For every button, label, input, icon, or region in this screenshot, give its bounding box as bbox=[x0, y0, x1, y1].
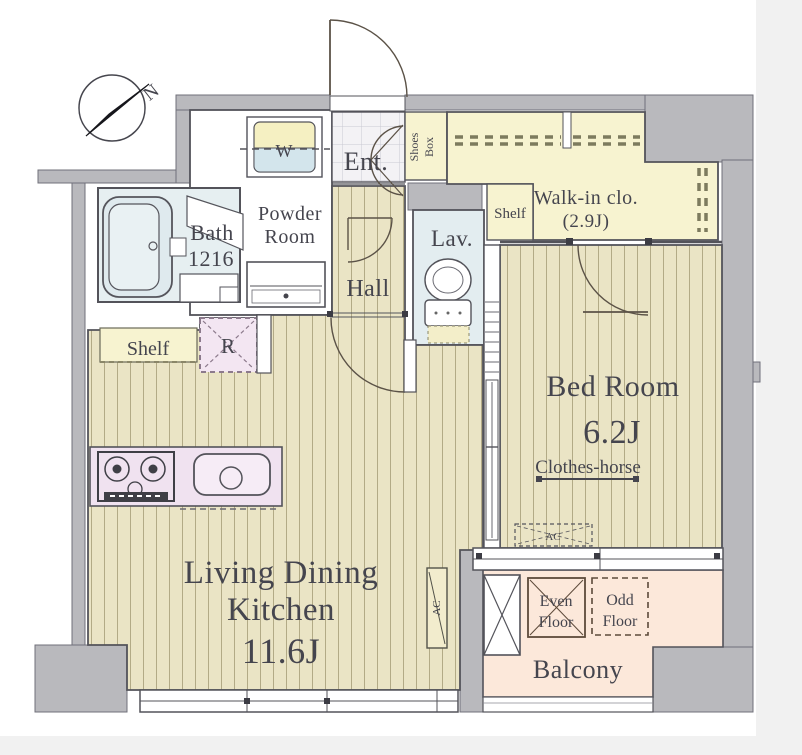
powder-room-label-2: Room bbox=[265, 226, 316, 248]
wall bbox=[72, 183, 85, 645]
wall bbox=[722, 160, 753, 647]
wall bbox=[645, 95, 753, 162]
ldk-ac-label: AC bbox=[431, 600, 443, 615]
lavatory-counter bbox=[408, 183, 482, 210]
ldk-size: 11.6J bbox=[242, 631, 320, 671]
powder-room-label-1: Powder bbox=[258, 203, 322, 225]
closet-shelf-label: Shelf bbox=[494, 206, 526, 222]
washbasin-cabinet bbox=[247, 262, 325, 307]
bath-drain bbox=[220, 287, 238, 302]
balcony-label: Balcony bbox=[533, 655, 623, 684]
wall bbox=[753, 362, 760, 382]
bedroom-label: Bed Room bbox=[546, 370, 679, 403]
evacuation-hatch-icon bbox=[484, 575, 520, 655]
shoes-box-label-1: Shoes bbox=[407, 132, 421, 161]
entry-label: Ent. bbox=[344, 147, 389, 176]
shoes-box-label-2: Box bbox=[422, 137, 436, 157]
washer-label: W bbox=[276, 141, 293, 161]
balcony-railing bbox=[483, 697, 653, 712]
ldk-label-1: Living Dining bbox=[184, 555, 378, 591]
bathtub-icon bbox=[103, 197, 172, 297]
ldk-label-2: Kitchen bbox=[227, 592, 335, 628]
wall bbox=[653, 647, 753, 712]
bedroom-balcony-window bbox=[473, 548, 723, 570]
floor-plan: N Ent. Shoes Box Walk-in clo. (2.9J) She… bbox=[0, 0, 802, 755]
wall-stub bbox=[257, 315, 271, 373]
lavatory-label: Lav. bbox=[431, 226, 473, 251]
hall-label: Hall bbox=[346, 276, 389, 302]
page-margin-right bbox=[756, 0, 802, 755]
bedroom-ac-label: AC bbox=[545, 531, 560, 543]
ldk-window bbox=[140, 690, 458, 712]
bath-label: Bath bbox=[190, 220, 234, 245]
page-margin-bottom bbox=[0, 736, 802, 755]
toilet-icon bbox=[425, 259, 471, 343]
clothes-horse-label: Clothes-horse bbox=[535, 457, 641, 478]
bedroom-size: 6.2J bbox=[583, 414, 641, 451]
even-floor-label-1: Even bbox=[540, 593, 573, 610]
walk-in-closet-size: (2.9J) bbox=[563, 211, 610, 232]
wall bbox=[460, 548, 483, 712]
odd-floor-label-1: Odd bbox=[606, 592, 634, 609]
wall bbox=[35, 645, 127, 712]
odd-floor-label-2: Floor bbox=[603, 613, 638, 630]
sink-icon bbox=[194, 454, 270, 495]
door-post bbox=[566, 238, 573, 245]
wall-stub bbox=[563, 112, 571, 148]
bath-faucet bbox=[170, 238, 186, 256]
ldk-shelf-label: Shelf bbox=[127, 338, 170, 360]
wall bbox=[176, 95, 330, 110]
bath-size: 1216 bbox=[188, 246, 234, 271]
floor-plan-page: N Ent. Shoes Box Walk-in clo. (2.9J) She… bbox=[0, 0, 802, 755]
lavatory-door bbox=[404, 340, 416, 392]
door-post bbox=[645, 238, 652, 245]
even-floor-label-2: Floor bbox=[539, 614, 574, 631]
kitchen-counter bbox=[90, 447, 282, 506]
fridge-label: R bbox=[221, 334, 235, 358]
walk-in-closet-label: Walk-in clo. bbox=[534, 187, 638, 209]
wall bbox=[405, 95, 648, 110]
wall bbox=[38, 170, 190, 183]
